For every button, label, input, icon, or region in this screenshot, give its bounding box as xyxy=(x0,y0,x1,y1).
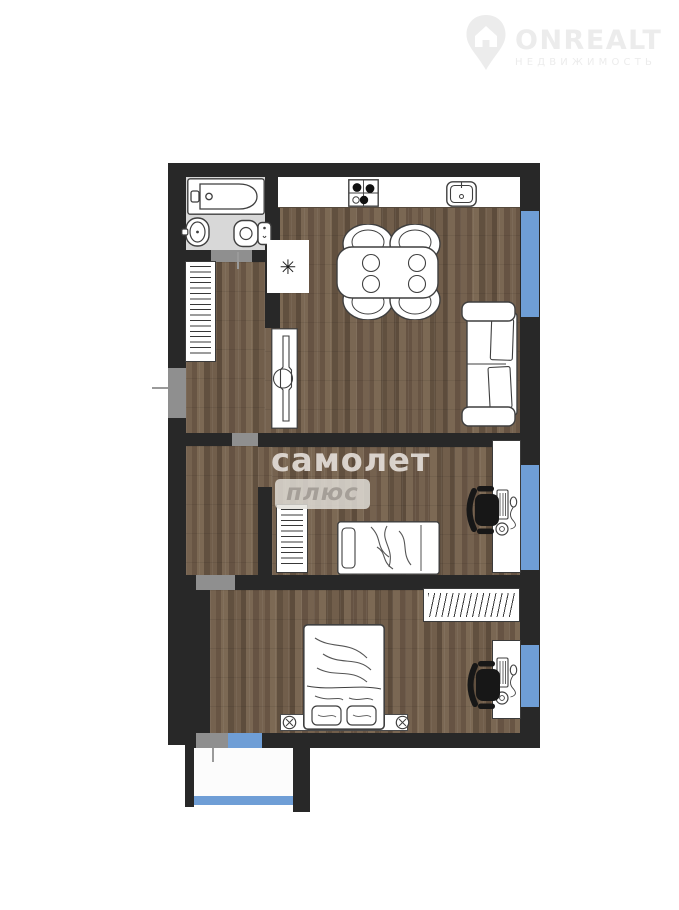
house-pin-icon xyxy=(463,13,509,73)
bath-door-swing-line xyxy=(237,252,239,269)
bottom-room-doorway xyxy=(196,575,235,590)
wardrobe-hatch xyxy=(428,593,515,617)
logo-text: ONREALT xyxy=(515,27,662,54)
balcony-floor xyxy=(194,748,293,796)
bathtub-icon xyxy=(187,178,265,215)
balcony-door-line xyxy=(212,748,214,762)
double-bed-icon xyxy=(303,624,385,730)
sliding-door-icon xyxy=(271,328,298,429)
window-middle-room xyxy=(521,465,539,570)
dining-set xyxy=(330,224,445,320)
sconce-icon xyxy=(395,715,410,730)
fridge-symbol: ✳ xyxy=(280,255,297,279)
wall-tick-mark xyxy=(152,387,168,389)
office-chair-icon xyxy=(463,659,503,711)
wall-bottom-left-block xyxy=(168,575,210,745)
window-kitchen xyxy=(521,211,539,317)
watermark-samolet: самолет xyxy=(271,441,430,479)
left-wall-gray-segment xyxy=(168,368,186,418)
wall-hall-cross xyxy=(186,433,232,446)
stove-icon xyxy=(348,179,379,207)
window-bottom-room xyxy=(521,645,539,707)
washbasin-icon xyxy=(181,216,211,248)
wall-corridor-middle xyxy=(258,487,272,575)
single-bed-icon xyxy=(337,521,440,575)
onrealt-logo: ONREALT НЕДВИЖИМОСТЬ xyxy=(463,13,662,73)
sconce-icon xyxy=(282,715,297,730)
kitchen-counter xyxy=(278,177,520,208)
office-chair-icon xyxy=(462,484,502,536)
floor-plan: ONREALT НЕДВИЖИМОСТЬ xyxy=(0,0,679,910)
balcony-glazing xyxy=(194,796,293,805)
window-to-balcony xyxy=(228,733,262,748)
watermark-plus-badge: плюс xyxy=(275,479,370,509)
doorway-floor xyxy=(258,446,272,487)
hall-wardrobe-icon xyxy=(185,261,216,362)
wall-top xyxy=(168,163,540,177)
fridge-niche: ✳ xyxy=(267,240,309,293)
wardrobe-hatch xyxy=(281,509,303,568)
watermark-plus-text: плюс xyxy=(286,480,359,506)
bottom-wardrobe-icon xyxy=(423,588,520,622)
kitchen-sink-icon xyxy=(446,181,477,207)
logo-tagline: НЕДВИЖИМОСТЬ xyxy=(515,57,662,68)
wardrobe-hatch xyxy=(190,266,211,357)
balcony-door-segment xyxy=(196,733,228,748)
balcony-wall-right xyxy=(293,745,310,812)
middle-wardrobe-icon xyxy=(276,504,308,573)
corridor-floor xyxy=(186,446,258,575)
sofa-icon xyxy=(461,301,519,428)
hall-doorway xyxy=(232,433,258,446)
balcony-wall-left xyxy=(185,745,194,807)
bathroom-doorway xyxy=(211,250,252,262)
